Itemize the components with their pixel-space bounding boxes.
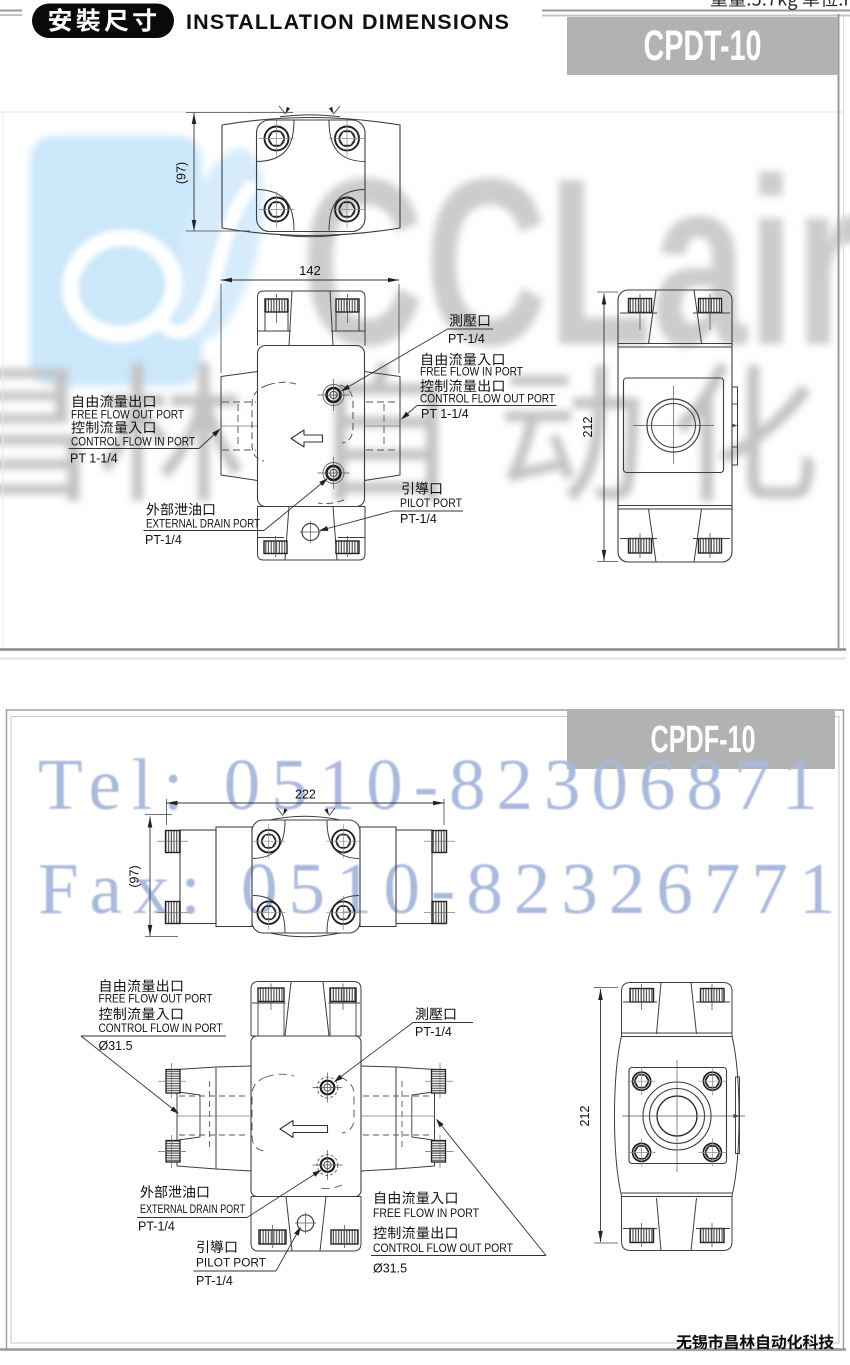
svg-text:212: 212 — [581, 417, 595, 438]
svg-text:CONTROL FLOW OUT PORT: CONTROL FLOW OUT PORT — [420, 394, 555, 406]
svg-text:FREE FLOW IN PORT: FREE FLOW IN PORT — [373, 1208, 479, 1220]
svg-text:FREE FLOW IN PORT: FREE FLOW IN PORT — [420, 367, 523, 379]
svg-text:PILOT PORT: PILOT PORT — [196, 1258, 266, 1270]
svg-text:CONTROL FLOW IN PORT: CONTROL FLOW IN PORT — [99, 1023, 223, 1035]
svg-text:PT-1/4: PT-1/4 — [138, 1220, 175, 1234]
svg-text:PT-1/4: PT-1/4 — [448, 332, 485, 346]
svg-text:142: 142 — [299, 263, 321, 278]
svg-text:FREE FLOW OUT PORT: FREE FLOW OUT PORT — [71, 410, 184, 422]
svg-text:EXTERNAL DRAIN PORT: EXTERNAL DRAIN PORT — [146, 519, 260, 531]
svg-text:PT 1-1/4: PT 1-1/4 — [421, 407, 469, 421]
svg-text:CONTROL FLOW OUT PORT: CONTROL FLOW OUT PORT — [373, 1243, 513, 1255]
svg-text:PT 1-1/4: PT 1-1/4 — [70, 452, 118, 466]
svg-text:Ø31.5: Ø31.5 — [373, 1262, 407, 1276]
svg-text:222: 222 — [295, 788, 316, 802]
svg-text:INSTALLATION DIMENSIONS: INSTALLATION DIMENSIONS — [186, 10, 510, 34]
svg-text:Tel: 0510-82306871: Tel: 0510-82306871 — [38, 744, 829, 825]
svg-text:PT-1/4: PT-1/4 — [400, 512, 437, 526]
svg-text:Ø31.5: Ø31.5 — [99, 1039, 133, 1053]
svg-text:CPDT-10: CPDT-10 — [644, 22, 762, 70]
svg-text:PT-1/4: PT-1/4 — [415, 1025, 452, 1039]
svg-text:CONTROL FLOW IN PORT: CONTROL FLOW IN PORT — [71, 437, 195, 449]
svg-text:EXTERNAL DRAIN PORT: EXTERNAL DRAIN PORT — [140, 1204, 245, 1216]
svg-text:PILOT PORT: PILOT PORT — [400, 498, 462, 510]
svg-text:CCLair: CCLair — [301, 130, 850, 395]
svg-text:(97): (97) — [128, 865, 142, 887]
svg-text:PT-1/4: PT-1/4 — [145, 533, 182, 547]
svg-text:PT-1/4: PT-1/4 — [196, 1274, 233, 1288]
svg-text:212: 212 — [578, 1106, 592, 1127]
svg-text:(97): (97) — [175, 162, 189, 184]
svg-text:FREE FLOW OUT PORT: FREE FLOW OUT PORT — [99, 994, 213, 1006]
